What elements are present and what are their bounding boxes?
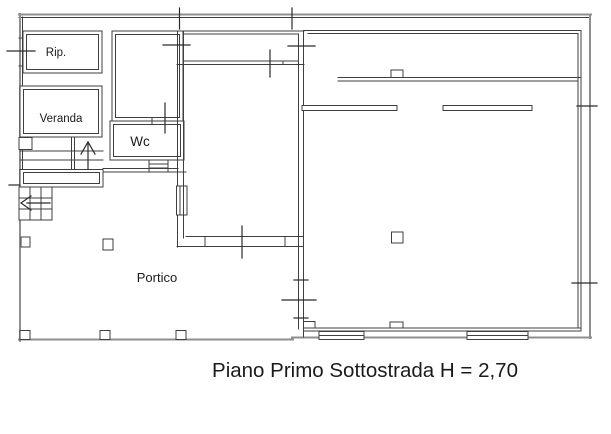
room-label-portico: Portico: [137, 270, 177, 285]
central-room-south-wall: [177, 226, 304, 258]
portico-pillar: [100, 331, 110, 340]
room-label-rip: Rip.: [46, 47, 66, 59]
room-rip: Rip.: [19, 31, 102, 73]
room-label-veranda: Veranda: [40, 113, 83, 125]
portico-pillar: [176, 331, 186, 340]
floor-plan: Rip. Veranda: [0, 0, 611, 434]
chimney-notch: [391, 70, 403, 78]
wall-segment: [177, 186, 188, 215]
wall-segment: [116, 35, 180, 118]
portico-pillar: [20, 331, 30, 340]
wall-segment: [149, 160, 168, 172]
portico-pillar: [21, 237, 30, 247]
corridor-top: [177, 31, 304, 77]
window-symbol: [467, 332, 528, 340]
drawing-caption: Piano Primo Sottostrada H = 2,70: [212, 359, 518, 382]
chimney-notch: [390, 322, 403, 328]
step-symbol: [149, 160, 168, 172]
portico: Portico: [20, 237, 186, 340]
outer-walls: [19, 14, 591, 341]
central-dividing-wall: [282, 31, 316, 337]
wall-segment: [19, 138, 32, 150]
window-hatch: [177, 186, 188, 215]
stair-direction-arrow-up: [81, 142, 95, 169]
partition-bar: [443, 106, 532, 111]
partition-bar: [302, 106, 397, 111]
room-main-right: [302, 106, 581, 340]
room-top-right: [304, 31, 582, 331]
room-veranda: Veranda: [20, 86, 102, 137]
wall-segment: [24, 90, 99, 134]
staircase: [19, 137, 103, 220]
pillar: [392, 232, 404, 243]
portico-pillar: [103, 239, 113, 250]
window-symbol: [319, 332, 364, 340]
room-label-wc: Wc: [130, 134, 150, 149]
wall-segment: [24, 173, 100, 184]
